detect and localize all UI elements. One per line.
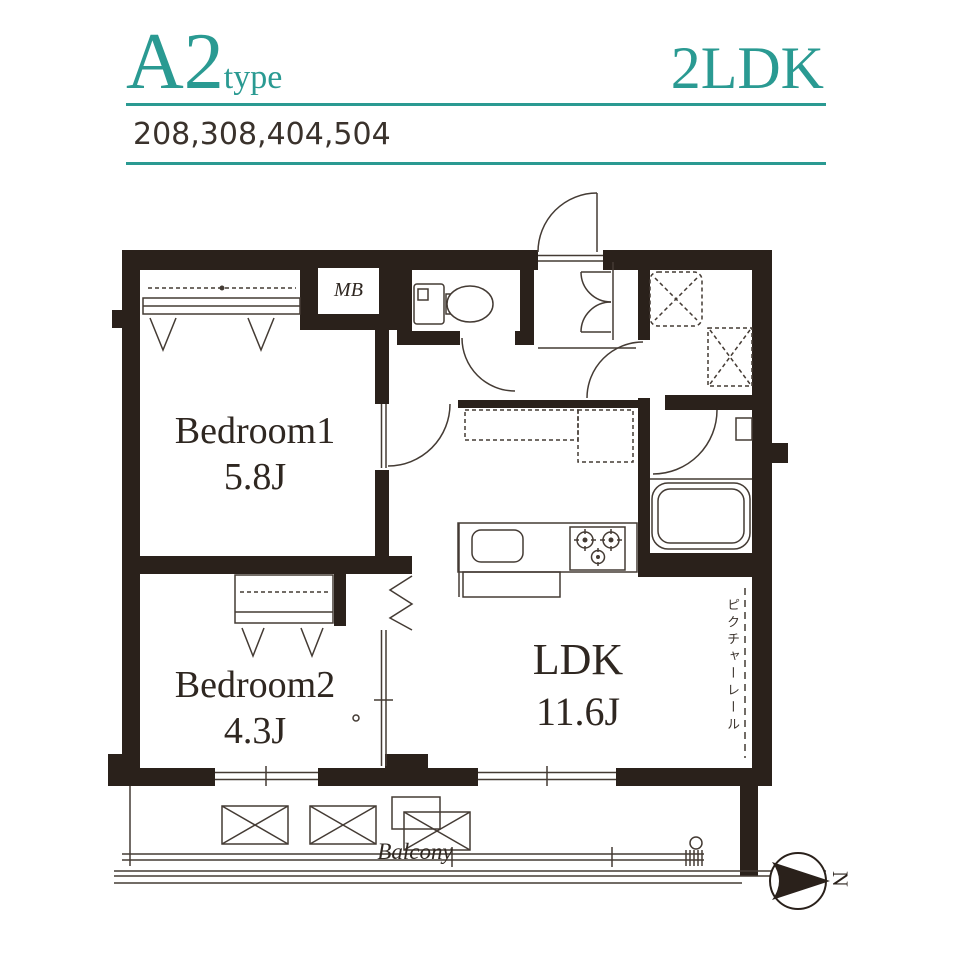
bath-door xyxy=(653,410,717,474)
bedroom1-name: Bedroom1 xyxy=(122,412,388,450)
meter-box-label: MB xyxy=(318,280,379,300)
curtain-marks xyxy=(150,318,274,350)
ldk-size: 11.6J xyxy=(468,692,688,732)
hanger-marks xyxy=(242,628,323,656)
bedroom2-name: Bedroom2 xyxy=(122,666,388,704)
ldk-name: LDK xyxy=(468,638,688,682)
washing-machine-space xyxy=(650,272,702,326)
balcony-label: Balcony xyxy=(350,840,480,863)
kitchen-counter xyxy=(458,523,637,597)
entrance-door xyxy=(538,193,603,261)
kitchen-cupboards-dashed xyxy=(465,410,633,462)
floor-plan-page: A2type 2LDK 208,308,404,504 xyxy=(0,0,960,960)
bath-window xyxy=(736,418,752,440)
washroom-door xyxy=(587,342,643,398)
bedroom1-window xyxy=(143,286,300,315)
bifold-closet-door xyxy=(390,576,412,630)
ldk-window xyxy=(478,766,616,786)
compass-north-label: N xyxy=(829,871,851,887)
bedroom2-closet xyxy=(235,575,333,623)
toilet-door xyxy=(462,338,515,391)
storage-shelf xyxy=(708,328,752,386)
bedroom2-size: 4.3J xyxy=(122,712,388,750)
bedroom1-door xyxy=(382,404,451,468)
bedroom1-size: 5.8J xyxy=(122,458,388,496)
entry-closet-doors xyxy=(581,262,613,340)
compass-icon xyxy=(770,853,830,909)
bedroom2-window xyxy=(215,766,318,786)
picture-rail-label: ピクチャーレール xyxy=(726,598,739,734)
walls xyxy=(108,250,788,876)
toilet-fixture xyxy=(414,284,493,324)
bathtub xyxy=(652,483,750,549)
